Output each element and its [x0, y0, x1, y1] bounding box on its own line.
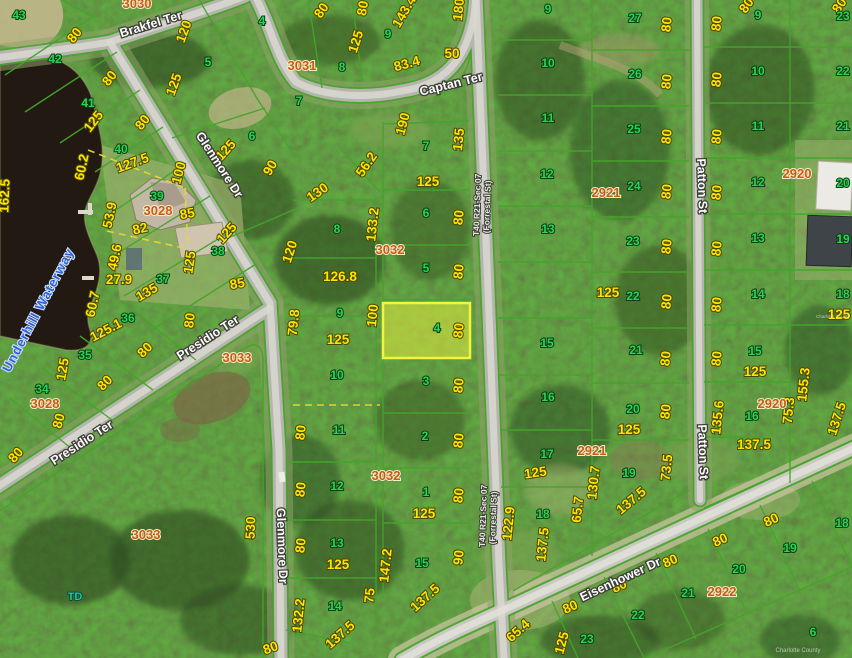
parcel-number-label: 34	[35, 382, 49, 396]
block-number-label: 3028	[31, 396, 60, 411]
parcel-number-label: 6	[810, 625, 817, 639]
parcel-number-label: 21	[681, 586, 695, 600]
parcel-number-label: 36	[121, 311, 135, 325]
dimension-label: 80	[708, 184, 724, 201]
dimension-label: 80	[450, 322, 466, 339]
dimension-label: 80	[658, 128, 674, 145]
dimension-label: 80	[658, 293, 674, 310]
parcel-number-label: 7	[296, 94, 303, 108]
parcel-number-label: 6	[423, 206, 430, 220]
parcel-number-label: 25	[627, 122, 641, 136]
parcel-number-label: 19	[783, 541, 797, 555]
dimension-label: 125	[327, 557, 350, 572]
dimension-label: 125	[597, 285, 620, 300]
dimension-label: 100	[364, 304, 381, 328]
dimension-label: 80	[450, 432, 466, 449]
street-name-label: Glenmore Dr	[274, 508, 291, 584]
block-number-label: 2922	[708, 584, 737, 599]
parcel-number-label: 5	[423, 261, 430, 275]
block-number-label: 3033	[132, 527, 161, 542]
parcel-number-label: 13	[751, 231, 765, 245]
parcel-number-label: 23	[626, 234, 640, 248]
dimension-label: 80	[450, 209, 466, 226]
road-plat-label: (Forrestal St)	[487, 491, 499, 544]
parcel-number-label: 43	[12, 8, 26, 22]
parcel-number-label: 14	[328, 599, 342, 613]
dimension-label: 80	[658, 183, 674, 200]
dimension-label: 80	[708, 296, 724, 313]
dimension-label: 125	[523, 463, 548, 481]
dimension-label: 80	[181, 312, 198, 329]
parcel-number-label: 9	[337, 306, 344, 320]
dimension-label: 80	[708, 240, 724, 257]
parcel-number-label: 10	[751, 64, 765, 78]
road-plat-label: (Forrestal St)	[481, 180, 493, 233]
parcel-number-label: 40	[114, 142, 128, 156]
parcel-number-label: 23	[836, 9, 850, 23]
dock	[82, 276, 94, 280]
dimension-label: 125	[618, 422, 641, 437]
block-number-label: 2920	[783, 166, 812, 181]
dimension-label: 80	[658, 16, 674, 33]
parcel-number-label: 23	[580, 632, 594, 646]
dimension-label: 80	[708, 128, 724, 145]
parcel-number-label: 27	[628, 11, 642, 25]
parcel-number-label: 22	[836, 64, 850, 78]
dimension-label: 80	[708, 71, 724, 88]
parcel-number-label: 38	[211, 244, 225, 258]
parcel-number-label: 15	[415, 556, 429, 570]
block-number-label: 3031	[288, 58, 317, 73]
parcel-number-label: 18	[835, 516, 849, 530]
parcel-number-label: 5	[205, 55, 212, 69]
parcel-number-label: 8	[334, 222, 341, 236]
parcel-number-label: 20	[626, 402, 640, 416]
dimension-label: 80	[450, 377, 466, 394]
dimension-label: 80	[657, 403, 673, 420]
parcel-number-label: 13	[541, 222, 555, 236]
block-number-label: 2921	[592, 185, 621, 200]
parcel-number-label: 42	[48, 52, 62, 66]
dimension-label: 125	[417, 174, 440, 189]
block-number-label: 3032	[372, 468, 401, 483]
dimension-label: 80	[450, 263, 466, 280]
dimension-label: 125	[327, 332, 350, 347]
dimension-label: 80	[708, 15, 724, 32]
dimension-label: 80	[657, 350, 673, 367]
parcel-number-label: 1	[423, 485, 430, 499]
block-number-label: 3028	[144, 203, 173, 218]
dimension-label: 80	[450, 487, 466, 504]
parcel-number-label: 6	[249, 129, 256, 143]
parcel-number-label: 11	[752, 119, 765, 133]
parcel-number-label: 9	[755, 8, 762, 22]
parcel-number-label: 14	[751, 287, 765, 301]
parcel-number-label: 15	[540, 336, 554, 350]
parcel-number-label: 26	[628, 67, 642, 81]
parcel-number-label: 11	[333, 423, 346, 437]
parcel-number-label: 13	[330, 536, 344, 550]
dimension-label: 90	[450, 549, 466, 566]
parcel-number-label: 11	[542, 111, 555, 125]
dimension-label: 27.9	[106, 272, 132, 287]
street-name-label: Patton St	[695, 424, 711, 480]
dimension-label: 80	[658, 238, 674, 255]
watermark: Charlotte County	[816, 314, 851, 319]
block-number-label: 2921	[578, 443, 607, 458]
parcel-number-label: 10	[330, 368, 344, 382]
parcel-number-label: 19	[836, 232, 850, 246]
parcel-number-label: 19	[622, 466, 636, 480]
parcel-number-label: 18	[836, 287, 850, 301]
pool-enclosure	[126, 248, 142, 270]
watermark: Charlotte County	[775, 648, 820, 654]
parcel-number-label: 2	[422, 429, 429, 443]
parcel-number-label: 16	[745, 409, 759, 423]
dimension-label: 80	[292, 481, 308, 498]
aerial-parcel-map[interactable]: 808012580120125125908012580143.41805083.…	[0, 0, 852, 658]
dimension-label: 125	[413, 506, 436, 521]
street-name-label: Patton St	[694, 158, 710, 214]
parcel-number-label: 21	[836, 119, 850, 133]
dimension-label: 85	[229, 275, 247, 292]
parcel-number-label: 39	[150, 189, 164, 203]
parcel-number-label: 21	[629, 343, 643, 357]
parcel-number-label: 41	[81, 96, 95, 110]
dimension-label: 80	[292, 424, 308, 441]
td-label: TD	[68, 591, 83, 603]
parcel-number-label: 12	[751, 175, 765, 189]
dock	[88, 203, 92, 215]
dimension-label: 50	[444, 46, 459, 61]
parcel-number-label: 16	[541, 390, 555, 404]
parcel-number-label: 4	[434, 321, 441, 335]
parcel-number-label: 15	[748, 344, 762, 358]
dimension-label: 80	[708, 350, 724, 367]
block-number-label: 3033	[223, 350, 252, 365]
parcel-number-label: 12	[330, 479, 344, 493]
dimension-label: 65.7	[569, 496, 587, 524]
parcel-number-label: 8	[339, 60, 346, 74]
dimension-label: 135	[450, 127, 467, 151]
parcel-number-label: 24	[627, 179, 641, 193]
parcel-number-label: 3	[423, 374, 430, 388]
dimension-label: 162.5	[0, 178, 13, 213]
parcel-map-viewport[interactable]: 808012580120125125908012580143.41805083.…	[0, 0, 852, 658]
parcel-number-label: 9	[385, 27, 392, 41]
dimension-label: 79.8	[285, 308, 303, 336]
block-number-label: 3030	[123, 0, 152, 11]
parcel-number-label: 18	[536, 507, 550, 521]
parcel-number-label: 12	[540, 167, 554, 181]
parcel-number-label: 17	[540, 447, 554, 461]
block-number-label: 3032	[376, 242, 405, 257]
parcel-number-label: 35	[78, 348, 92, 362]
dimension-label: 80	[658, 73, 674, 90]
parcel-number-label: 7	[423, 139, 430, 153]
block-number-label: 2920	[758, 396, 787, 411]
parcel-number-label: 4	[259, 14, 266, 28]
dimension-label: 126.8	[323, 269, 357, 284]
parcel-number-label: 10	[541, 56, 555, 70]
dimension-label: 80	[292, 537, 308, 554]
parcel-number-label: 9	[545, 2, 552, 16]
dimension-label: 137.5	[737, 437, 771, 452]
parcel-number-label: 22	[631, 608, 645, 622]
parcel-number-label: 22	[626, 289, 640, 303]
parcel-number-label: 20	[732, 562, 746, 576]
dimension-label: 80	[354, 0, 371, 17]
dimension-label: 125	[181, 250, 199, 275]
parcel-number-label: 20	[836, 176, 850, 190]
dimension-label: 73.5	[658, 453, 676, 481]
dimension-label: 530	[243, 516, 259, 539]
dimension-label: 75	[361, 587, 378, 604]
dimension-label: 125	[744, 364, 767, 379]
parcel-number-label: 37	[156, 272, 170, 286]
dimension-label: 85	[179, 205, 197, 222]
dimension-label: 180	[450, 0, 467, 22]
dimension-label: 82	[131, 220, 149, 238]
